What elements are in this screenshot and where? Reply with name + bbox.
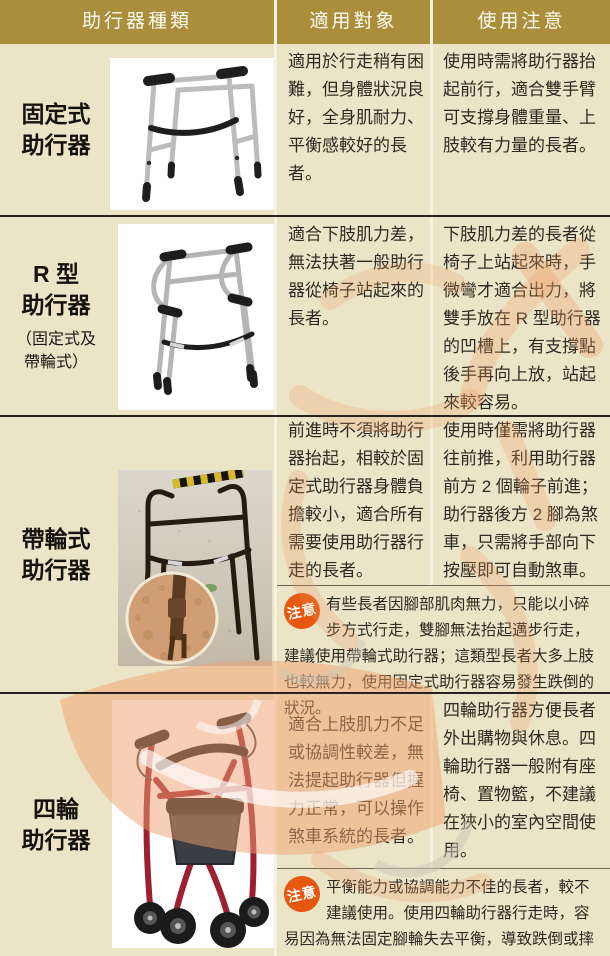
column-separator xyxy=(274,0,277,44)
r-type-walker-image xyxy=(118,224,274,410)
walker-type-name: 固定式 助行器 xyxy=(22,99,91,161)
row-divider xyxy=(0,415,610,417)
caution-note: 注意有些長者因腳部肌肉無力，只能以小碎步方式行走，雙腳無法抬起邁步行走，建議使用… xyxy=(277,585,610,692)
notes-cell: 使用時僅需將助行器往前推，利用助行器前方 2 個輪子前進；助行器後方 2 腳為煞… xyxy=(430,417,610,585)
header-col-target: 適用對象 xyxy=(277,0,430,44)
row-wheeled-walker: 帶輪式 助行器 xyxy=(0,417,610,692)
row-divider xyxy=(0,692,610,694)
row-four-wheel-rollator: 四輪 助行器 xyxy=(0,694,610,956)
header-col-type: 助行器種類 xyxy=(0,0,274,44)
walker-comparison-table: 助行器種類 適用對象 使用注意 固定式 助行器 xyxy=(0,0,610,956)
walker-type-name: 四輪 助行器 xyxy=(22,794,91,856)
four-wheel-rollator-illustration xyxy=(112,700,274,948)
column-separator xyxy=(430,0,433,44)
caution-badge: 注意 xyxy=(281,590,324,633)
walker-type-label: 帶輪式 助行器 xyxy=(0,417,112,692)
caution-text: 平衡能力或協調能力不佳的長者，較不建議使用。使用四輪助行器行走時，容易因為無法固… xyxy=(284,879,594,956)
row-r-type-walker: R 型 助行器 （固定式及 帶輪式） xyxy=(0,217,610,415)
fixed-walker-illustration xyxy=(110,58,274,210)
walker-type-name: R 型 助行器 xyxy=(22,259,91,321)
target-cell: 前進時不須將助行器抬起，相較於固定式助行器身體負擔較小，適合所有需要使用助行器行… xyxy=(277,417,430,585)
notes-cell: 使用時需將助行器抬起前行，適合雙手臂可支撐身體重量、上肢較有力量的長者。 xyxy=(430,44,610,164)
walker-type-label: R 型 助行器 （固定式及 帶輪式） xyxy=(0,217,112,415)
row-divider xyxy=(0,215,610,217)
target-cell: 適用於行走稍有困難，但身體狀況良好，全身肌耐力、平衡感較好的長者。 xyxy=(277,44,430,192)
table-header: 助行器種類 適用對象 使用注意 xyxy=(0,0,610,44)
wheeled-walker-photo xyxy=(118,470,272,666)
target-cell: 適合下肢肌力差，無法扶著一般助行器從椅子站起來的長者。 xyxy=(277,217,430,337)
walker-type-label: 固定式 助行器 xyxy=(0,44,112,215)
r-type-walker-illustration xyxy=(118,224,274,410)
notes-cell: 下肢肌力差的長者從椅子上站起來時，手微彎才適合出力，將雙手放在 R 型助行器的凹… xyxy=(430,217,610,421)
notes-cell: 四輪助行器方便長者外出購物與休息。四輪助行器一般附有座椅、置物籃，不建議在狹小的… xyxy=(430,694,610,868)
walker-subtype-label: （固定式及 帶輪式） xyxy=(16,328,96,374)
header-col-notes: 使用注意 xyxy=(433,0,610,44)
fixed-walker-image xyxy=(110,58,274,210)
caution-badge: 注意 xyxy=(281,873,324,916)
wheeled-walker-photo-illustration xyxy=(118,470,272,666)
walker-type-name: 帶輪式 助行器 xyxy=(22,524,91,586)
caution-note: 注意平衡能力或協調能力不佳的長者，較不建議使用。使用四輪助行器行走時，容易因為無… xyxy=(277,868,610,956)
row-fixed-walker: 固定式 助行器 xyxy=(0,44,610,215)
four-wheel-rollator-image xyxy=(112,700,274,948)
walker-type-label: 四輪 助行器 xyxy=(0,694,112,956)
target-cell: 適合上肢肌力不足或協調性較差，無法提起助行器但握力正常，可以操作煞車系統的長者。 xyxy=(277,694,430,868)
